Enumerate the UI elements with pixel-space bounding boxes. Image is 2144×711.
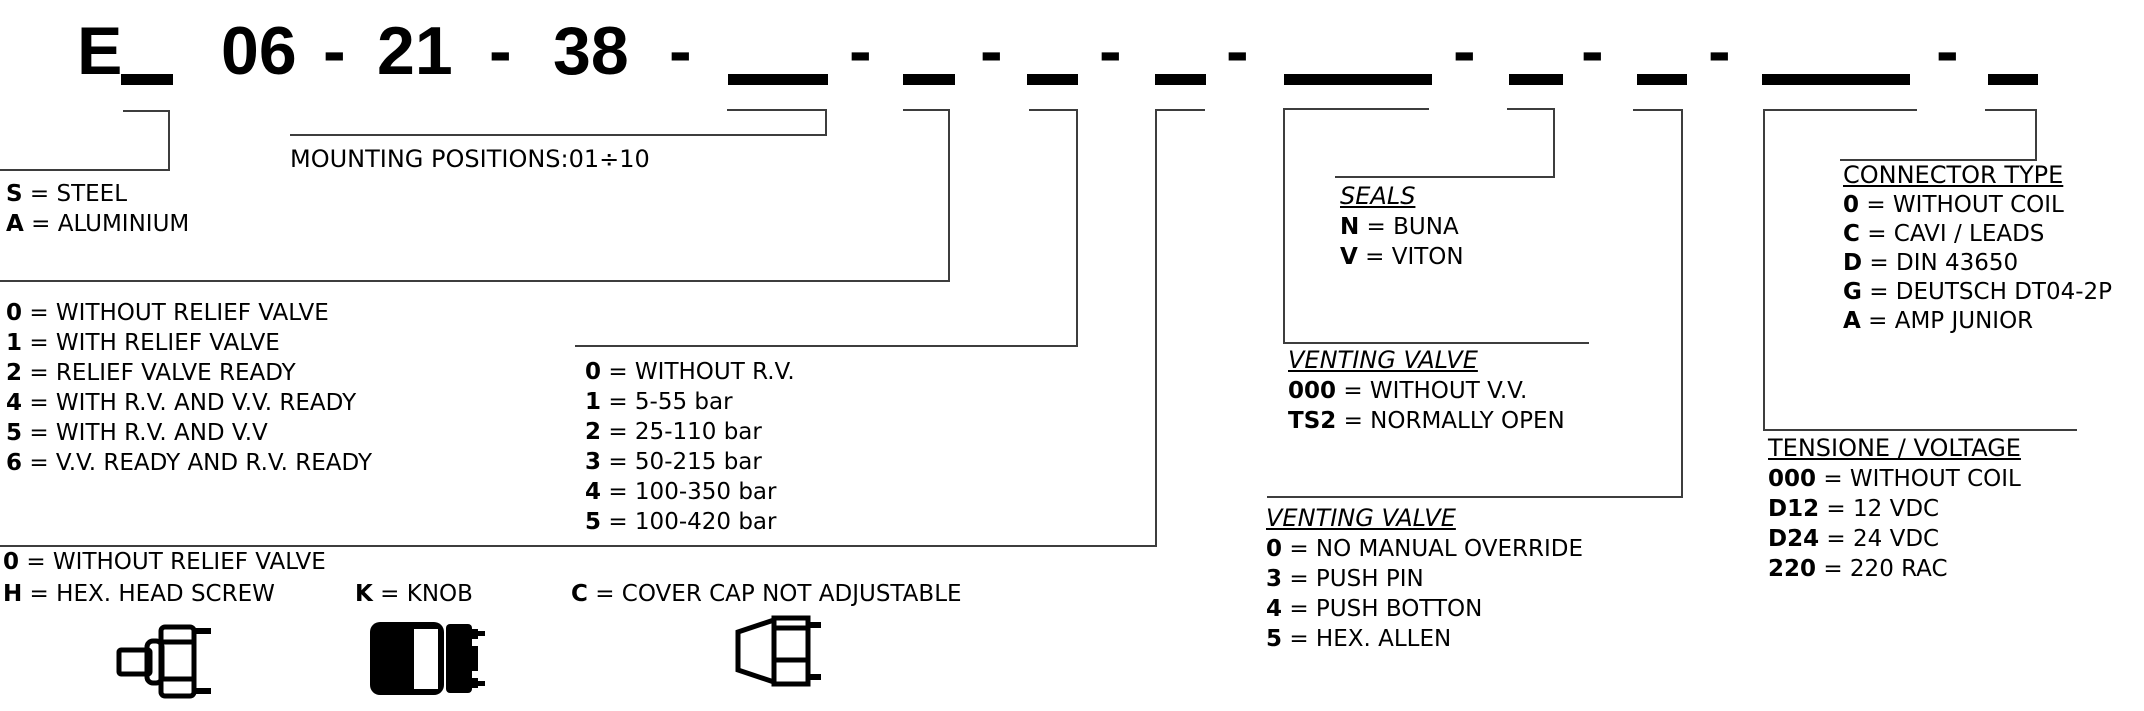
legend-item: 5 = WITH R.V. AND V.V xyxy=(6,418,372,448)
legend-item-code: D12 xyxy=(1768,496,1819,522)
seals-callout-line xyxy=(1335,176,1555,178)
equals-sign: = xyxy=(1282,566,1316,592)
legend-item-label: 100-420 bar xyxy=(635,509,777,535)
equals-sign: = xyxy=(601,479,635,505)
legend-item-label: NO MANUAL OVERRIDE xyxy=(1316,536,1583,562)
legend-item-code: 0 xyxy=(3,549,19,575)
legend-item-label: WITHOUT RELIEF VALVE xyxy=(56,300,329,326)
equals-sign: = xyxy=(1862,279,1896,305)
legend-item-label: 24 VDC xyxy=(1853,526,1939,552)
equals-sign: = xyxy=(588,581,622,607)
legend-item-label: CAVI / LEADS xyxy=(1894,221,2045,247)
legend-item: 0 = WITHOUT R.V. xyxy=(585,357,795,387)
voltage-legend: TENSIONE / VOLTAGE 000 = WITHOUT COILD12… xyxy=(1768,434,2021,584)
legend-item: D = DIN 43650 xyxy=(1843,249,2112,278)
equals-sign: = xyxy=(1816,466,1850,492)
legend-item-code: H xyxy=(3,581,22,607)
venting-type-callout-line xyxy=(1283,342,1589,344)
equals-sign: = xyxy=(22,360,56,386)
legend-item: 2 = RELIEF VALVE READY xyxy=(6,358,372,388)
equals-sign: = xyxy=(1816,556,1850,582)
relief-config-callout-line xyxy=(948,109,950,282)
legend-item-code: 3 xyxy=(1266,566,1282,592)
legend-item-code: 4 xyxy=(6,390,22,416)
legend-item: G = DEUTSCH DT04-2P xyxy=(1843,278,2112,307)
relief-config-callout-line xyxy=(903,109,950,111)
legend-item: V = VITON xyxy=(1340,242,1464,272)
code-separator: - xyxy=(849,17,872,85)
legend-item-label: RELIEF VALVE READY xyxy=(56,360,296,386)
legend-item-code: 0 xyxy=(6,300,22,326)
adjustment-legend-row2: H = HEX. HEAD SCREWK = KNOBC = COVER CAP… xyxy=(0,579,1160,609)
code-blank-mounting-position xyxy=(728,74,828,85)
legend-item-label: WITHOUT RELIEF VALVE xyxy=(53,549,326,575)
mounting-positions-label: MOUNTING POSITIONS:01÷10 xyxy=(290,145,650,173)
legend-item-label: HEX. ALLEN xyxy=(1316,626,1451,652)
knob-icon xyxy=(368,620,486,697)
legend-item: 000 = WITHOUT V.V. xyxy=(1288,376,1565,406)
adjustment-callout-line xyxy=(1155,109,1157,547)
equals-sign: = xyxy=(19,549,53,575)
legend-item: 2 = 25-110 bar xyxy=(585,417,795,447)
seals-legend: SEALS N = BUNAV = VITON xyxy=(1340,182,1464,272)
connector-type-items: 0 = WITHOUT COILC = CAVI / LEADSD = DIN … xyxy=(1843,191,2112,336)
legend-item: 5 = 100-420 bar xyxy=(585,507,795,537)
mounting-callout-line xyxy=(825,109,827,136)
equals-sign: = xyxy=(1336,378,1370,404)
venting-override-title: VENTING VALVE xyxy=(1266,504,1583,532)
equals-sign: = xyxy=(601,509,635,535)
legend-item-code: 4 xyxy=(585,479,601,505)
equals-sign: = xyxy=(1359,214,1393,240)
legend-item-label: 50-215 bar xyxy=(635,449,762,475)
connector-type-title: CONNECTOR TYPE xyxy=(1843,161,2112,189)
legend-item: 1 = 5-55 bar xyxy=(585,387,795,417)
legend-item-label: AMP JUNIOR xyxy=(1895,308,2033,334)
legend-item: C = CAVI / LEADS xyxy=(1843,220,2112,249)
legend-item-code: 1 xyxy=(585,389,601,415)
legend-item-code: 3 xyxy=(585,449,601,475)
code-blank-pressure-range xyxy=(1027,74,1078,85)
legend-item-code: D24 xyxy=(1768,526,1819,552)
equals-sign: = xyxy=(1860,221,1894,247)
equals-sign: = xyxy=(22,581,56,607)
pressure-range-legend: 0 = WITHOUT R.V.1 = 5-55 bar2 = 25-110 b… xyxy=(585,357,795,537)
legend-item-code: 5 xyxy=(1266,626,1282,652)
legend-item-label: PUSH BOTTON xyxy=(1316,596,1482,622)
code-separator: - xyxy=(1099,17,1122,85)
legend-item-code: TS2 xyxy=(1288,408,1336,434)
legend-item-label: WITHOUT COIL xyxy=(1893,192,2064,218)
material-callout-line xyxy=(0,169,170,171)
legend-item-label: WITHOUT R.V. xyxy=(635,359,795,385)
legend-item: 0 = WITHOUT COIL xyxy=(1843,191,2112,220)
equals-sign: = xyxy=(373,581,407,607)
legend-item-code: 6 xyxy=(6,450,22,476)
connector-type-legend: CONNECTOR TYPE 0 = WITHOUT COILC = CAVI … xyxy=(1843,161,2112,336)
venting-override-callout-line xyxy=(1633,109,1683,111)
legend-item-label: HEX. HEAD SCREW xyxy=(56,581,275,607)
equals-sign: = xyxy=(24,211,58,237)
equals-sign: = xyxy=(601,419,635,445)
legend-item-code: 000 xyxy=(1288,378,1336,404)
seals-items: N = BUNAV = VITON xyxy=(1340,212,1464,272)
equals-sign: = xyxy=(1282,626,1316,652)
legend-item: 4 = WITH R.V. AND V.V. READY xyxy=(6,388,372,418)
legend-item-code: 5 xyxy=(585,509,601,535)
code-blank-connector-type xyxy=(1988,74,2038,85)
legend-item-label: DEUTSCH DT04-2P xyxy=(1896,279,2112,305)
material-legend: S = STEELA = ALUMINIUM xyxy=(6,179,189,239)
code-blank-venting-valve-type xyxy=(1284,74,1432,85)
adjustment-legend-row1: 0 = WITHOUT RELIEF VALVE xyxy=(3,547,326,577)
legend-item-label: BUNA xyxy=(1393,214,1459,240)
legend-item-label: 220 RAC xyxy=(1850,556,1948,582)
legend-item-code: D xyxy=(1843,250,1862,276)
legend-item-code: V xyxy=(1340,244,1358,270)
legend-item: 6 = V.V. READY AND R.V. READY xyxy=(6,448,372,478)
legend-item: 000 = WITHOUT COIL xyxy=(1768,464,2021,494)
code-separator: - xyxy=(323,17,346,85)
legend-item: D12 = 12 VDC xyxy=(1768,494,2021,524)
code-text-21: 21 xyxy=(377,17,453,85)
equals-sign: = xyxy=(22,420,56,446)
material-callout-line xyxy=(123,110,170,112)
equals-sign: = xyxy=(1819,526,1853,552)
voltage-items: 000 = WITHOUT COILD12 = 12 VDCD24 = 24 V… xyxy=(1768,464,2021,584)
code-blank-seals xyxy=(1509,74,1563,85)
legend-item-label: 12 VDC xyxy=(1853,496,1939,522)
venting-type-callout-line xyxy=(1283,108,1429,110)
legend-item-code: G xyxy=(1843,279,1862,305)
equals-sign: = xyxy=(22,330,56,356)
code-blank-adjustment xyxy=(1155,74,1206,85)
seals-callout-line xyxy=(1553,108,1555,178)
legend-item-code: 0 xyxy=(1266,536,1282,562)
equals-sign: = xyxy=(1861,308,1895,334)
legend-item: 0 = WITHOUT RELIEF VALVE xyxy=(3,547,326,577)
legend-item-code: C xyxy=(571,581,588,607)
equals-sign: = xyxy=(22,450,56,476)
legend-item-code: C xyxy=(1843,221,1860,247)
seals-title: SEALS xyxy=(1340,182,1464,210)
legend-item-label: COVER CAP NOT ADJUSTABLE xyxy=(622,581,962,607)
legend-item: 3 = PUSH PIN xyxy=(1266,564,1583,594)
seals-callout-line xyxy=(1507,108,1555,110)
code-text-38: 38 xyxy=(553,17,629,85)
venting-override-items: 0 = NO MANUAL OVERRIDE3 = PUSH PIN4 = PU… xyxy=(1266,534,1583,654)
legend-item-code: 220 xyxy=(1768,556,1816,582)
legend-item: K = KNOB xyxy=(355,579,473,609)
pressure-callout-line xyxy=(1029,109,1078,111)
legend-item-label: 100-350 bar xyxy=(635,479,777,505)
equals-sign: = xyxy=(1819,496,1853,522)
legend-item: TS2 = NORMALLY OPEN xyxy=(1288,406,1565,436)
legend-item-label: VITON xyxy=(1392,244,1464,270)
legend-item: N = BUNA xyxy=(1340,212,1464,242)
legend-item-code: 1 xyxy=(6,330,22,356)
equals-sign: = xyxy=(1282,536,1316,562)
legend-item-label: V.V. READY AND R.V. READY xyxy=(56,450,372,476)
code-text-E: E xyxy=(77,17,122,85)
venting-valve-type-items: 000 = WITHOUT V.V.TS2 = NORMALLY OPEN xyxy=(1288,376,1565,436)
cover-cap-icon xyxy=(734,615,822,687)
legend-item-code: 2 xyxy=(585,419,601,445)
legend-item-code: S xyxy=(6,181,23,207)
legend-item-code: 5 xyxy=(6,420,22,446)
code-separator: - xyxy=(669,17,692,85)
equals-sign: = xyxy=(601,449,635,475)
legend-item-label: PUSH PIN xyxy=(1316,566,1424,592)
venting-valve-type-title: VENTING VALVE xyxy=(1288,346,1565,374)
equals-sign: = xyxy=(1859,192,1893,218)
legend-item-code: 2 xyxy=(6,360,22,386)
legend-item-label: NORMALLY OPEN xyxy=(1370,408,1565,434)
equals-sign: = xyxy=(1282,596,1316,622)
legend-item: 0 = NO MANUAL OVERRIDE xyxy=(1266,534,1583,564)
code-text-06: 06 xyxy=(221,17,297,85)
material-callout-line xyxy=(168,110,170,171)
code-separator: - xyxy=(980,17,1003,85)
code-blank-material xyxy=(121,74,173,85)
adjustment-callout-line xyxy=(1155,109,1205,111)
legend-item: A = ALUMINIUM xyxy=(6,209,189,239)
legend-item-code: K xyxy=(355,581,373,607)
legend-item: D24 = 24 VDC xyxy=(1768,524,2021,554)
equals-sign: = xyxy=(23,181,57,207)
voltage-title: TENSIONE / VOLTAGE xyxy=(1768,434,2021,462)
equals-sign: = xyxy=(601,389,635,415)
legend-item: C = COVER CAP NOT ADJUSTABLE xyxy=(571,579,962,609)
legend-item: 4 = 100-350 bar xyxy=(585,477,795,507)
legend-item-label: 5-55 bar xyxy=(635,389,733,415)
legend-item: 4 = PUSH BOTTON xyxy=(1266,594,1583,624)
legend-item-label: WITH R.V. AND V.V. READY xyxy=(56,390,356,416)
equals-sign: = xyxy=(601,359,635,385)
legend-item-code: A xyxy=(6,211,24,237)
legend-item-label: WITHOUT COIL xyxy=(1850,466,2021,492)
equals-sign: = xyxy=(22,300,56,326)
legend-item-code: N xyxy=(1340,214,1359,240)
legend-item-label: WITH R.V. AND V.V xyxy=(56,420,268,446)
venting-override-legend: VENTING VALVE 0 = NO MANUAL OVERRIDE3 = … xyxy=(1266,504,1583,654)
venting-override-callout-line xyxy=(1267,496,1683,498)
venting-valve-type-legend: VENTING VALVE 000 = WITHOUT V.V.TS2 = NO… xyxy=(1288,346,1565,436)
legend-item: 220 = 220 RAC xyxy=(1768,554,2021,584)
relief-config-callout-line xyxy=(0,280,950,282)
legend-item-label: DIN 43650 xyxy=(1896,250,2018,276)
legend-item-label: WITH RELIEF VALVE xyxy=(56,330,280,356)
legend-item-label: 25-110 bar xyxy=(635,419,762,445)
legend-item: 5 = HEX. ALLEN xyxy=(1266,624,1583,654)
code-separator: - xyxy=(1581,17,1604,85)
legend-item: 1 = WITH RELIEF VALVE xyxy=(6,328,372,358)
connector-callout-line xyxy=(1985,109,2037,111)
legend-item-code: 0 xyxy=(1843,192,1859,218)
code-separator: - xyxy=(1708,17,1731,85)
pressure-callout-line xyxy=(1076,109,1078,347)
mounting-callout-line xyxy=(290,134,827,136)
legend-item: S = STEEL xyxy=(6,179,189,209)
equals-sign: = xyxy=(1358,244,1392,270)
legend-item: H = HEX. HEAD SCREW xyxy=(3,579,275,609)
hex-head-screw-icon xyxy=(113,622,215,700)
legend-item-code: A xyxy=(1843,308,1861,334)
legend-item: 3 = 50-215 bar xyxy=(585,447,795,477)
voltage-callout-line xyxy=(1763,429,2077,431)
code-separator: - xyxy=(1226,17,1249,85)
relief-valve-config-legend: 0 = WITHOUT RELIEF VALVE1 = WITH RELIEF … xyxy=(6,298,372,478)
legend-item-code: 000 xyxy=(1768,466,1816,492)
pressure-callout-line xyxy=(575,345,1078,347)
equals-sign: = xyxy=(1862,250,1896,276)
legend-item-label: WITHOUT V.V. xyxy=(1370,378,1527,404)
code-separator: - xyxy=(489,17,512,85)
legend-item: 0 = WITHOUT RELIEF VALVE xyxy=(6,298,372,328)
equals-sign: = xyxy=(22,390,56,416)
code-separator: - xyxy=(1936,17,1959,85)
code-separator: - xyxy=(1453,17,1476,85)
legend-item-label: STEEL xyxy=(56,181,127,207)
ordering-code-diagram: E06-21-38--------- S = STEELA = ALUMINIU… xyxy=(0,0,2144,711)
legend-item: A = AMP JUNIOR xyxy=(1843,307,2112,336)
code-blank-voltage xyxy=(1762,74,1910,85)
legend-item-code: 0 xyxy=(585,359,601,385)
mounting-callout-line xyxy=(727,109,827,111)
voltage-callout-line xyxy=(1763,109,1917,111)
venting-override-callout-line xyxy=(1681,109,1683,498)
venting-type-callout-line xyxy=(1283,108,1285,344)
legend-item-label: ALUMINIUM xyxy=(58,211,190,237)
legend-item-label: KNOB xyxy=(407,581,473,607)
code-blank-venting-override xyxy=(1637,74,1687,85)
connector-callout-line xyxy=(2035,109,2037,161)
code-blank-relief-valve-config xyxy=(903,74,955,85)
equals-sign: = xyxy=(1336,408,1370,434)
voltage-callout-line xyxy=(1763,109,1765,431)
legend-item-code: 4 xyxy=(1266,596,1282,622)
